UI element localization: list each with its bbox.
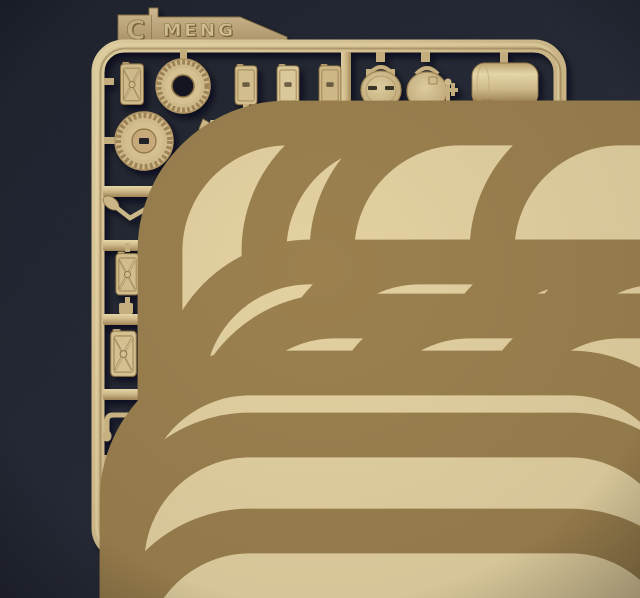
sprue: C C MENG MENG — [97, 8, 640, 598]
photo-stage: C C MENG MENG — [0, 0, 640, 598]
tag-brand-face: MENG — [163, 22, 236, 41]
sprue-photo: C C MENG MENG — [0, 0, 640, 598]
gate-nubs — [122, 123, 640, 598]
